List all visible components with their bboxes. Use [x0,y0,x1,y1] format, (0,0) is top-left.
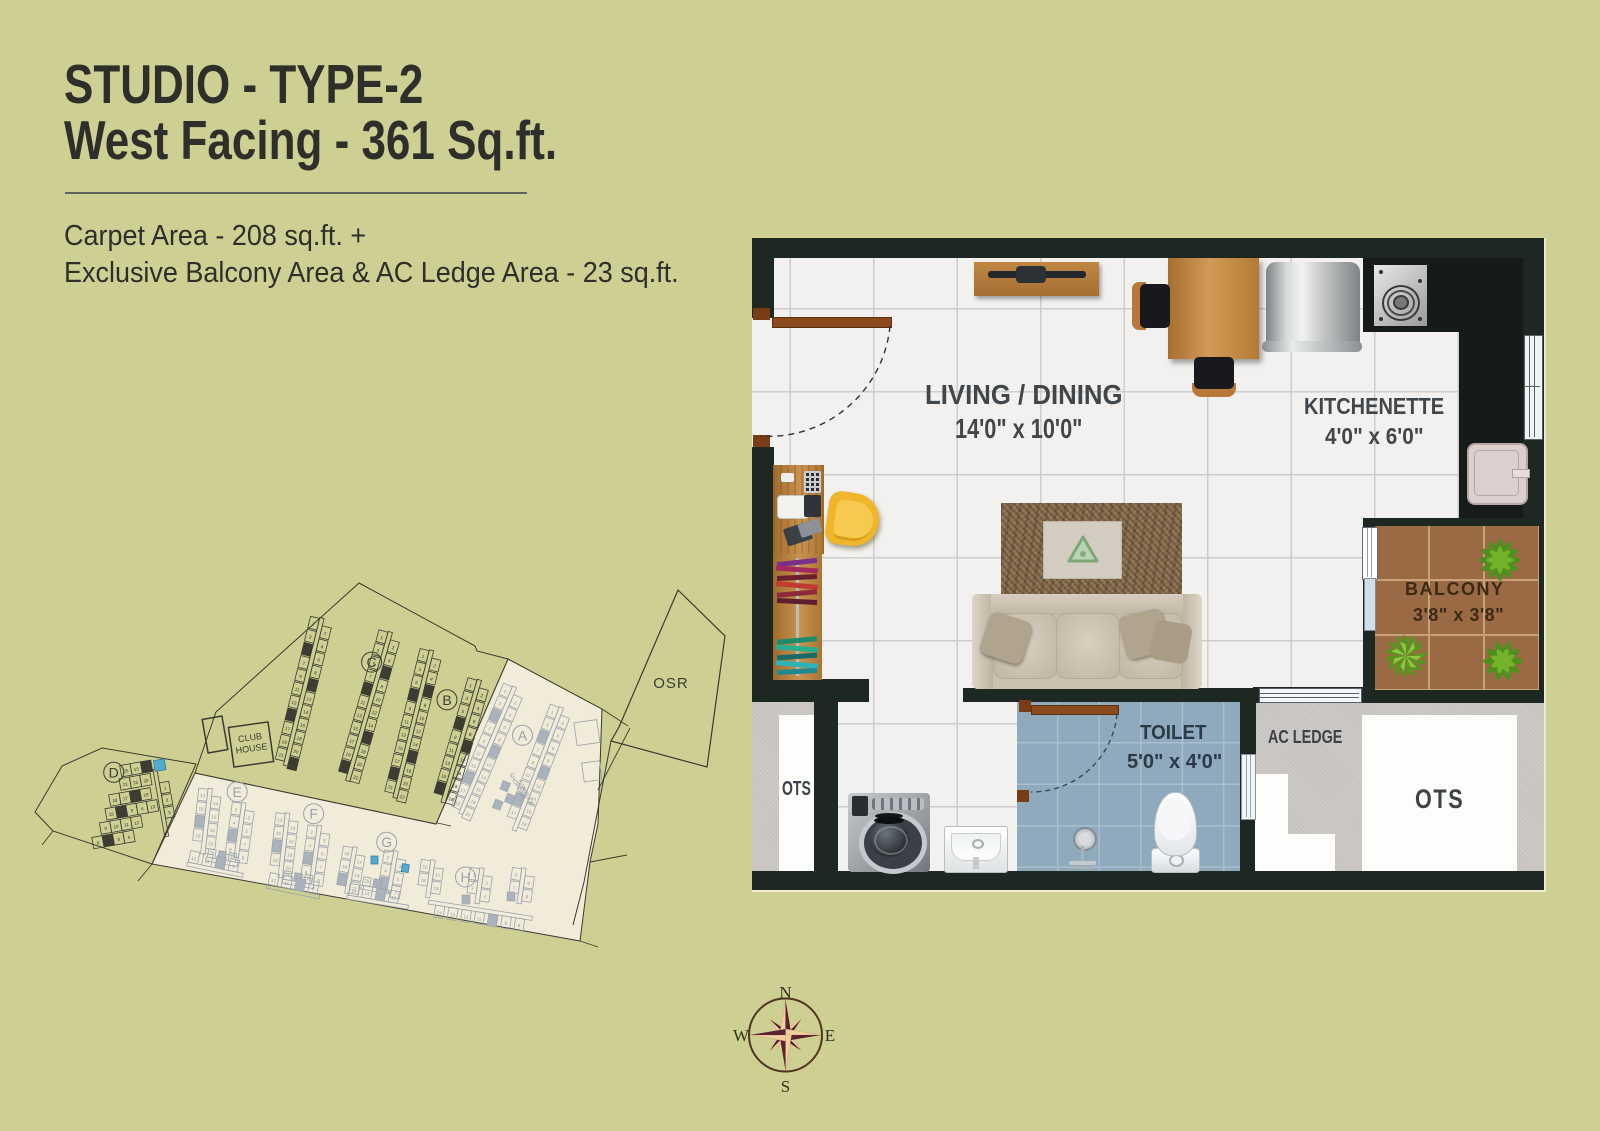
svg-text:20: 20 [285,866,291,872]
svg-text:D: D [109,764,119,780]
svg-text:F: F [309,806,318,822]
svg-text:S: S [781,1077,790,1095]
svg-text:H: H [460,869,470,885]
svg-text:19: 19 [195,833,201,839]
svg-text:19: 19 [272,858,278,864]
svg-text:E: E [825,1026,835,1045]
svg-text:N: N [779,983,791,1002]
svg-text:W: W [733,1026,750,1045]
svg-text:13: 13 [200,793,206,799]
svg-text:16: 16 [211,814,217,820]
svg-text:18: 18 [210,828,216,834]
svg-text:A: A [518,727,528,743]
svg-text:13: 13 [277,817,283,823]
svg-text:14: 14 [290,825,296,831]
svg-text:OSR: OSR [653,675,689,692]
svg-text:18: 18 [287,852,293,858]
svg-text:15: 15 [275,831,281,837]
svg-text:E: E [233,784,242,800]
svg-text:20: 20 [208,841,214,847]
svg-text:16: 16 [288,839,294,845]
svg-text:B: B [442,692,451,708]
svg-text:14: 14 [213,801,219,807]
svg-text:C: C [367,654,377,670]
svg-text:15: 15 [198,806,204,812]
svg-text:G: G [381,834,392,850]
